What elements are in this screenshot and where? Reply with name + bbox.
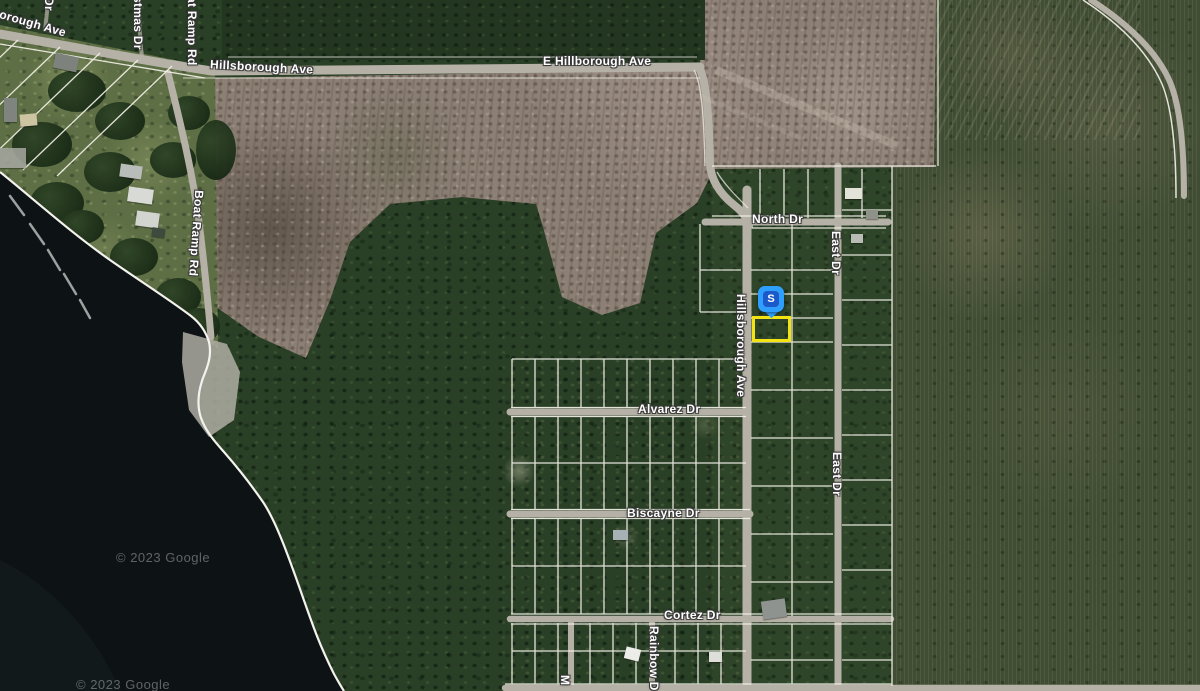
building	[4, 98, 17, 122]
satellite-map[interactable]: borough Ave Dr stmas Dr at Ramp Rd Hills…	[0, 0, 1200, 691]
building	[613, 530, 628, 540]
road-label-hillsborough-ave-vertical: Hillsborough Ave	[734, 294, 747, 397]
road-label-rainbow-dr-partial: Rainbow D	[647, 626, 660, 691]
building	[151, 227, 165, 238]
marker-letter: S	[763, 291, 779, 307]
building	[0, 148, 26, 168]
building	[851, 234, 863, 243]
building	[761, 598, 787, 619]
building	[20, 113, 38, 126]
road-label-cortez-dr: Cortez Dr	[664, 609, 721, 622]
road-label-m-partial: M	[558, 675, 571, 685]
road-label-alvarez-dr: Alvarez Dr	[638, 403, 700, 416]
road-label-east-dr-lower: East Dr	[830, 452, 843, 496]
building	[709, 652, 722, 662]
building	[135, 210, 160, 228]
google-watermark-upper: © 2023 Google	[116, 550, 210, 565]
road-label-north-dr: North Dr	[752, 213, 803, 226]
road-label-biscayne-dr: Biscayne Dr	[627, 507, 700, 520]
map-marker[interactable]: S	[758, 286, 784, 324]
road-label-east-dr-upper: East Dr	[829, 231, 842, 275]
building	[866, 210, 878, 219]
road-label-e-hillborough-ave: E Hillborough Ave	[543, 55, 651, 68]
marker-head-icon: S	[758, 286, 784, 312]
google-watermark-lower: © 2023 Google	[76, 677, 170, 691]
map-vector-layer	[0, 0, 1200, 691]
road-label-christmas-dr-partial: stmas Dr	[131, 0, 144, 50]
road-label-dr-partial: Dr	[42, 0, 55, 11]
road-label-boat-ramp-rd-partial: at Ramp Rd	[185, 0, 198, 66]
building	[845, 188, 862, 199]
